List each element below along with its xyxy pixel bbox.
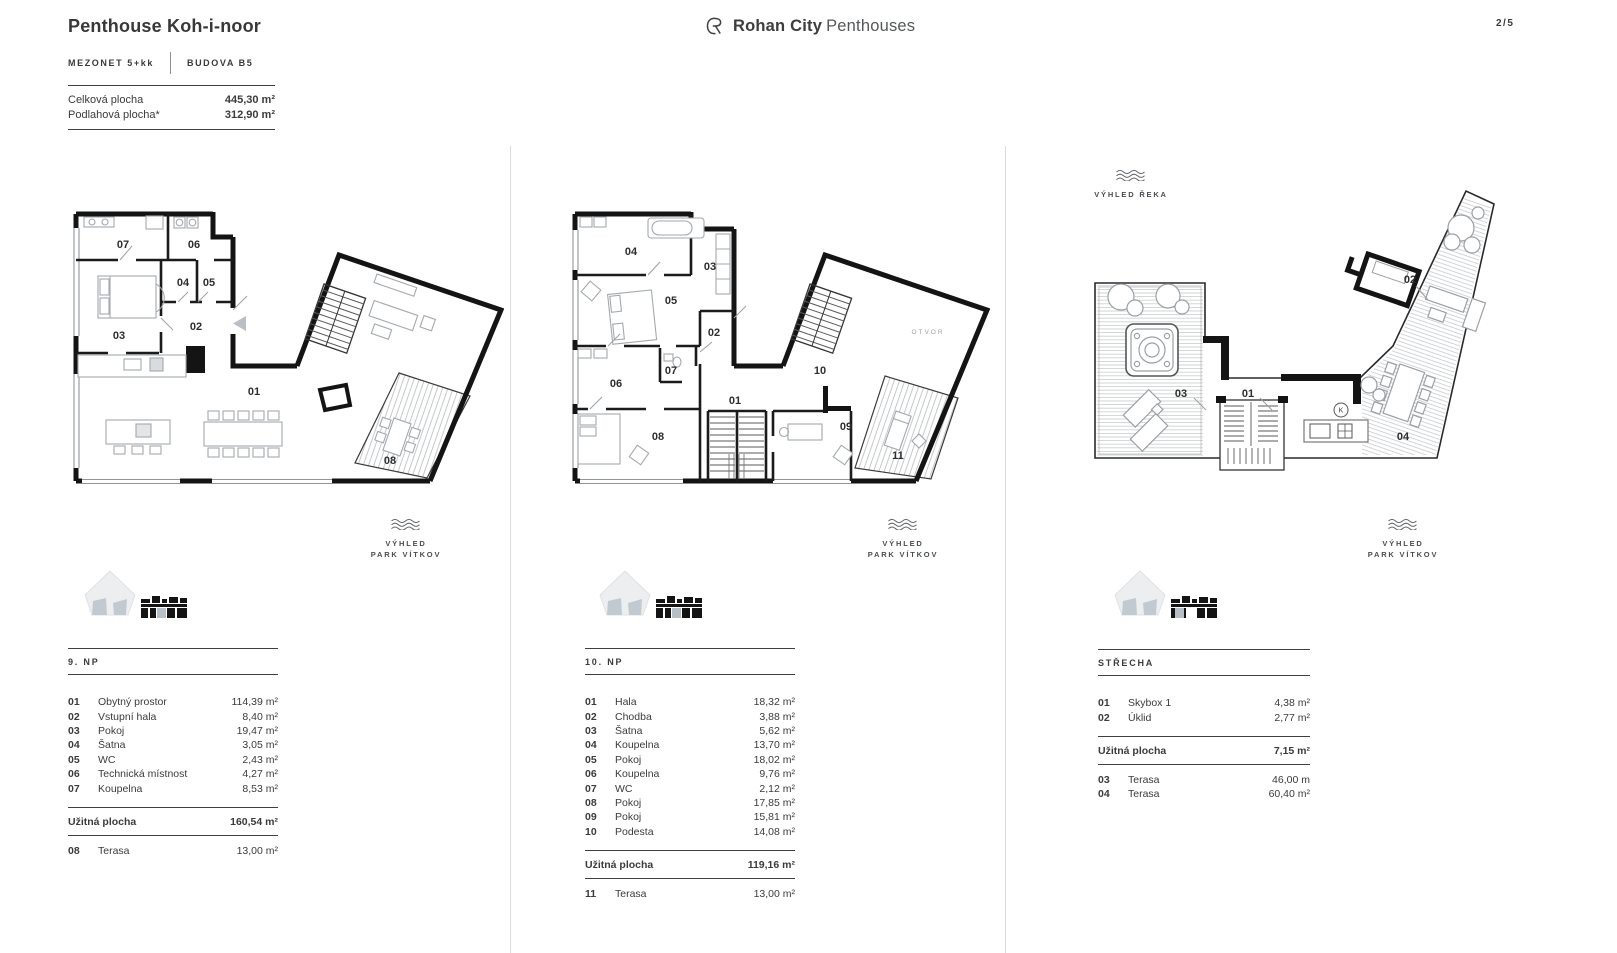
legend-row: 10Podesta14,08 m² <box>585 825 795 839</box>
legend-row-name: Terasa <box>98 845 237 857</box>
waves-icon <box>391 518 421 530</box>
room-label: 08 <box>652 431 664 443</box>
view-label-park-2: VÝHLED PARK VÍTKOV <box>857 517 949 560</box>
legend-10np: 10. NP 01Hala18,32 m²02Chodba3,88 m²03Ša… <box>585 648 795 901</box>
legend-row-value: 3,88 m² <box>759 711 795 723</box>
legend-row-value: 13,00 m² <box>237 845 278 857</box>
total-value: 7,15 m² <box>1274 745 1310 757</box>
legend-row-name: Skybox 1 <box>1128 697 1274 709</box>
brand-name: Rohan CityPenthouses <box>733 17 915 36</box>
room-label: 04 <box>625 246 638 258</box>
unit-footprint-icon <box>84 570 136 621</box>
legend-total: Užitná plocha 119,16 m² <box>585 850 795 879</box>
summary-row-value: 445,30 m² <box>225 93 275 108</box>
room-label: 01 <box>248 386 260 398</box>
legend-row-name: Hala <box>615 696 754 708</box>
total-label: Užitná plocha <box>585 859 653 871</box>
view-label-text: VÝHLED PARK VÍTKOV <box>857 538 949 560</box>
room-label: 08 <box>384 455 396 467</box>
legend-row-num: 07 <box>68 783 98 795</box>
legend-row-value: 14,08 m² <box>754 826 795 838</box>
tag-mezonet: MEZONET 5+kk <box>68 58 154 68</box>
legend-row: 02Chodba3,88 m² <box>585 709 795 723</box>
legend-rows: 01Skybox 14,38 m²02Úklid2,77 m² <box>1098 696 1310 725</box>
rohan-city-logo-icon <box>702 15 724 37</box>
waves-icon <box>888 518 918 530</box>
stairs-icon-wing <box>791 284 851 353</box>
legend-row-value: 17,85 m² <box>754 797 795 809</box>
furniture <box>78 216 443 460</box>
legend-row: 03Pokoj19,47 m² <box>68 724 278 738</box>
floor-label: 10. NP <box>585 648 795 675</box>
legend-extra: 08Terasa13,00 m² <box>68 844 278 858</box>
legend-row-value: 19,47 m² <box>237 725 278 737</box>
summary-row-label: Podlahová plocha* <box>68 108 160 123</box>
legend-row: 05Pokoj18,02 m² <box>585 753 795 767</box>
entrance-arrow-icon <box>233 316 246 331</box>
legend-9np: 9. NP 01Obytný prostor114,39 m²02Vstupní… <box>68 648 278 858</box>
legend-row-num: 04 <box>1098 788 1128 800</box>
legend-extra: 03Terasa46,00 m04Terasa60,40 m² <box>1098 773 1310 802</box>
total-label: Užitná plocha <box>68 816 136 828</box>
legend-row-num: 08 <box>585 797 615 809</box>
room-label: 05 <box>203 277 215 289</box>
floor-label: STŘECHA <box>1098 649 1310 676</box>
legend-row: 01Obytný prostor114,39 m² <box>68 695 278 709</box>
legend-row-value: 9,76 m² <box>759 768 795 780</box>
brand-name-light: Penthouses <box>826 17 915 35</box>
legend-extra: 11Terasa13,00 m² <box>585 887 795 901</box>
legend-row-value: 8,53 m² <box>242 783 278 795</box>
legend-row-num: 11 <box>585 888 615 900</box>
legend-row-name: Pokoj <box>615 754 754 766</box>
legend-row-value: 46,00 m <box>1272 774 1310 786</box>
legend-row: 01Skybox 14,38 m² <box>1098 696 1310 710</box>
floor-plan-9np: 01 02 03 04 05 06 07 08 <box>62 196 504 488</box>
summary-row-value: 312,90 m² <box>225 108 275 123</box>
legend-row-num: 01 <box>585 696 615 708</box>
view-label-river: VÝHLED ŘEKA <box>1075 168 1187 200</box>
legend-total: Užitná plocha 7,15 m² <box>1098 736 1310 765</box>
room-label: 02 <box>190 321 202 333</box>
view-label-park-3: VÝHLED PARK VÍTKOV <box>1357 517 1449 560</box>
legend-row: 07Koupelna8,53 m² <box>68 781 278 795</box>
legend-row: 08Pokoj17,85 m² <box>585 796 795 810</box>
legend-row: 11Terasa13,00 m² <box>585 887 795 901</box>
legend-row: 06Koupelna9,76 m² <box>585 767 795 781</box>
room-label: 09 <box>840 421 852 433</box>
legend-row: 03Šatna5,62 m² <box>585 724 795 738</box>
legend-row: 08Terasa13,00 m² <box>68 844 278 858</box>
header: Penthouse Koh-i-noor MEZONET 5+kk BUDOVA… <box>68 16 275 130</box>
room-label: 06 <box>188 239 200 251</box>
unit-tags: MEZONET 5+kk BUDOVA B5 <box>68 52 275 74</box>
room-label: 10 <box>814 365 826 377</box>
floor-plan-10np: 01 02 03 04 05 06 07 08 09 10 11 OTVOR <box>548 196 990 488</box>
legend-row-name: Koupelna <box>615 739 754 751</box>
kitchen-point-label: K <box>1339 408 1344 415</box>
legend-row-name: Koupelna <box>98 783 242 795</box>
room-label: 07 <box>665 365 677 377</box>
legend-row-num: 04 <box>585 739 615 751</box>
building-elevation-icon <box>1171 596 1217 623</box>
void-shaft <box>320 385 350 410</box>
stairs-icon <box>305 284 365 353</box>
total-label: Užitná plocha <box>1098 745 1166 757</box>
legend-row-value: 13,00 m² <box>754 888 795 900</box>
page-title: Penthouse Koh-i-noor <box>68 16 275 37</box>
view-label-text: VÝHLED ŘEKA <box>1075 189 1187 200</box>
legend-row: 02Úklid2,77 m² <box>1098 710 1310 724</box>
legend-row-name: Vstupní hala <box>98 711 242 723</box>
legend-row-name: Obytný prostor <box>98 696 232 708</box>
legend-row: 04Šatna3,05 m² <box>68 738 278 752</box>
legend-row-num: 05 <box>68 754 98 766</box>
unit-footprint-icon <box>599 570 651 621</box>
legend-row-num: 03 <box>585 725 615 737</box>
legend-row-value: 8,40 m² <box>242 711 278 723</box>
legend-row-value: 18,02 m² <box>754 754 795 766</box>
legend-row-name: Pokoj <box>615 797 754 809</box>
room-label: 02 <box>1404 274 1416 286</box>
legend-row-num: 06 <box>585 768 615 780</box>
summary-row: Celková plocha445,30 m² <box>68 93 275 108</box>
view-label-park-1: VÝHLED PARK VÍTKOV <box>360 517 452 560</box>
void-label: OTVOR <box>911 329 944 336</box>
legend-row: 04Terasa60,40 m² <box>1098 787 1310 801</box>
view-label-text: VÝHLED PARK VÍTKOV <box>360 538 452 560</box>
legend-row-num: 07 <box>585 783 615 795</box>
floorplan-sheet: Penthouse Koh-i-noor MEZONET 5+kk BUDOVA… <box>0 0 1617 953</box>
waves-icon <box>1116 169 1146 181</box>
legend-row-name: Šatna <box>98 739 242 751</box>
total-value: 119,16 m² <box>748 859 795 871</box>
legend-rows: 01Obytný prostor114,39 m²02Vstupní hala8… <box>68 695 278 796</box>
legend-row-num: 06 <box>68 768 98 780</box>
column-divider-2 <box>1005 146 1006 953</box>
legend-row-name: Chodba <box>615 711 759 723</box>
legend-row-name: WC <box>615 783 759 795</box>
legend-row: 05WC2,43 m² <box>68 753 278 767</box>
legend-row-num: 03 <box>68 725 98 737</box>
legend-row-num: 01 <box>68 696 98 708</box>
view-label-text: VÝHLED PARK VÍTKOV <box>1357 538 1449 560</box>
legend-row-num: 02 <box>68 711 98 723</box>
legend-roof: STŘECHA 01Skybox 14,38 m²02Úklid2,77 m² … <box>1098 649 1310 802</box>
legend-row-value: 2,12 m² <box>759 783 795 795</box>
wall-block <box>823 406 851 411</box>
legend-row-name: Pokoj <box>98 725 237 737</box>
room-label: 04 <box>1397 431 1410 443</box>
legend-row-value: 5,62 m² <box>759 725 795 737</box>
legend-row-name: Terasa <box>1128 788 1269 800</box>
legend-row: 04Koupelna13,70 m² <box>585 738 795 752</box>
legend-row-value: 15,81 m² <box>754 811 795 823</box>
legend-row-num: 10 <box>585 826 615 838</box>
legend-row-value: 2,77 m² <box>1274 712 1310 724</box>
legend-row-value: 18,32 m² <box>754 696 795 708</box>
legend-row: 03Terasa46,00 m <box>1098 773 1310 787</box>
room-label: 01 <box>1242 388 1254 400</box>
brand-name-bold: Rohan City <box>733 17 822 35</box>
legend-row-name: Podesta <box>615 826 754 838</box>
room-label: 06 <box>610 378 622 390</box>
page-number: 2/5 <box>1496 18 1514 29</box>
legend-total: Užitná plocha 160,54 m² <box>68 807 278 836</box>
unit-footprint-icon <box>1114 570 1166 621</box>
legend-row-value: 3,05 m² <box>242 739 278 751</box>
legend-row-value: 13,70 m² <box>754 739 795 751</box>
building-elevation-icon <box>656 596 702 623</box>
legend-row-value: 4,38 m² <box>1274 697 1310 709</box>
room-label: 07 <box>117 239 129 251</box>
legend-row-value: 4,27 m² <box>242 768 278 780</box>
legend-row-name: Koupelna <box>615 768 759 780</box>
legend-row-num: 05 <box>585 754 615 766</box>
legend-row-name: Technická místnost <box>98 768 242 780</box>
legend-row-value: 60,40 m² <box>1269 788 1310 800</box>
legend-row-num: 04 <box>68 739 98 751</box>
legend-row-num: 02 <box>1098 712 1128 724</box>
room-label: 11 <box>892 450 904 462</box>
room-label: 05 <box>665 295 677 307</box>
floor-label: 9. NP <box>68 648 278 675</box>
legend-row-num: 08 <box>68 845 98 857</box>
legend-row: 06Technická místnost4,27 m² <box>68 767 278 781</box>
room-label: 03 <box>704 261 716 273</box>
legend-row-num: 02 <box>585 711 615 723</box>
wall-block <box>186 346 205 373</box>
area-summary: Celková plocha445,30 m²Podlahová plocha*… <box>68 85 275 130</box>
summary-row: Podlahová plocha*312,90 m² <box>68 108 275 123</box>
legend-row-num: 01 <box>1098 697 1128 709</box>
legend-row-value: 2,43 m² <box>242 754 278 766</box>
legend-row: 09Pokoj15,81 m² <box>585 810 795 824</box>
total-value: 160,54 m² <box>230 816 278 828</box>
legend-row: 02Vstupní hala8,40 m² <box>68 709 278 723</box>
column-divider-1 <box>510 146 511 953</box>
legend-row-num: 09 <box>585 811 615 823</box>
summary-row-label: Celková plocha <box>68 93 143 108</box>
room-labels: 01 02 03 04 05 06 07 08 09 10 11 <box>610 246 904 462</box>
room-label: 02 <box>708 327 720 339</box>
legend-rows: 01Hala18,32 m²02Chodba3,88 m²03Šatna5,62… <box>585 695 795 839</box>
legend-row: 01Hala18,32 m² <box>585 695 795 709</box>
legend-row-name: Úklid <box>1128 712 1274 724</box>
legend-row-name: Šatna <box>615 725 759 737</box>
legend-row-num: 03 <box>1098 774 1128 786</box>
legend-row-name: Pokoj <box>615 811 754 823</box>
room-label: 03 <box>1175 388 1187 400</box>
legend-row: 07WC2,12 m² <box>585 781 795 795</box>
tag-divider <box>170 52 171 74</box>
legend-row-name: Terasa <box>615 888 754 900</box>
stair-core <box>1216 396 1288 470</box>
room-label: 03 <box>113 330 125 342</box>
floor-plan-roof: K 01 02 03 04 <box>1048 158 1500 480</box>
legend-row-name: Terasa <box>1128 774 1272 786</box>
building-elevation-icon <box>141 596 187 623</box>
room-label: 01 <box>729 395 741 407</box>
brand: Rohan CityPenthouses <box>702 15 915 37</box>
legend-row-value: 114,39 m² <box>232 696 279 708</box>
waves-icon <box>1388 518 1418 530</box>
legend-row-name: WC <box>98 754 242 766</box>
tag-budova: BUDOVA B5 <box>187 58 253 68</box>
room-label: 04 <box>177 277 190 289</box>
